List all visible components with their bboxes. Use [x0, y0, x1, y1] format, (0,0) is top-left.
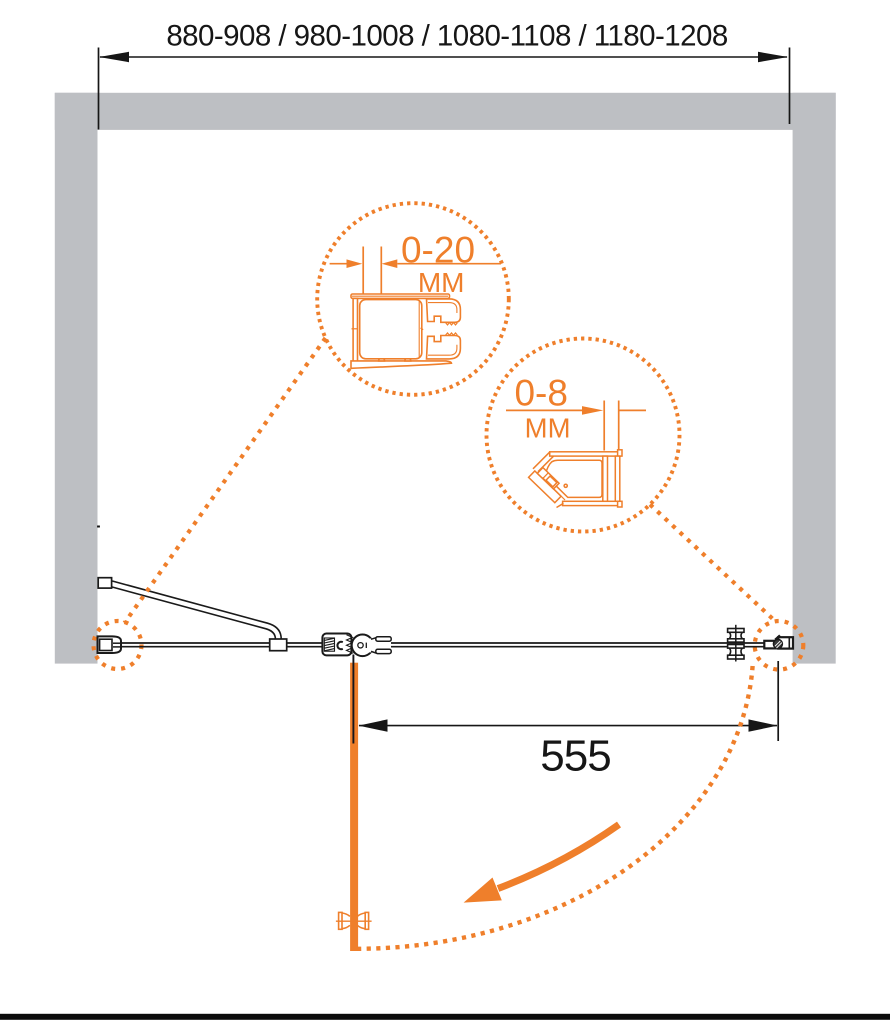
svg-text:555: 555 — [540, 732, 610, 781]
svg-text:880-908 / 980-1008 / 1080-1108: 880-908 / 980-1008 / 1080-1108 / 1180-12… — [166, 20, 728, 53]
svg-text:0-8: 0-8 — [514, 373, 567, 414]
svg-text:ММ: ММ — [525, 413, 571, 444]
